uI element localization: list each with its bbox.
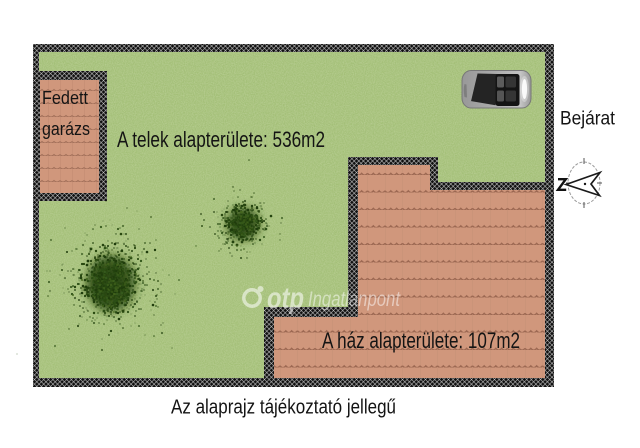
svg-text:otp: otp	[267, 282, 304, 315]
svg-text:Bejárat: Bejárat	[560, 109, 616, 130]
svg-text:Ingatlanpont: Ingatlanpont	[308, 288, 401, 311]
svg-text:A telek alapterülete: 536m2: A telek alapterülete: 536m2	[117, 127, 325, 152]
svg-text:Az alaprajz tájékoztató jelleg: Az alaprajz tájékoztató jellegű	[171, 397, 396, 419]
svg-text:A ház alapterülete: 107m2: A ház alapterülete: 107m2	[322, 328, 520, 353]
svg-text:garázs: garázs	[42, 119, 90, 139]
svg-text:Fedett: Fedett	[42, 88, 88, 108]
